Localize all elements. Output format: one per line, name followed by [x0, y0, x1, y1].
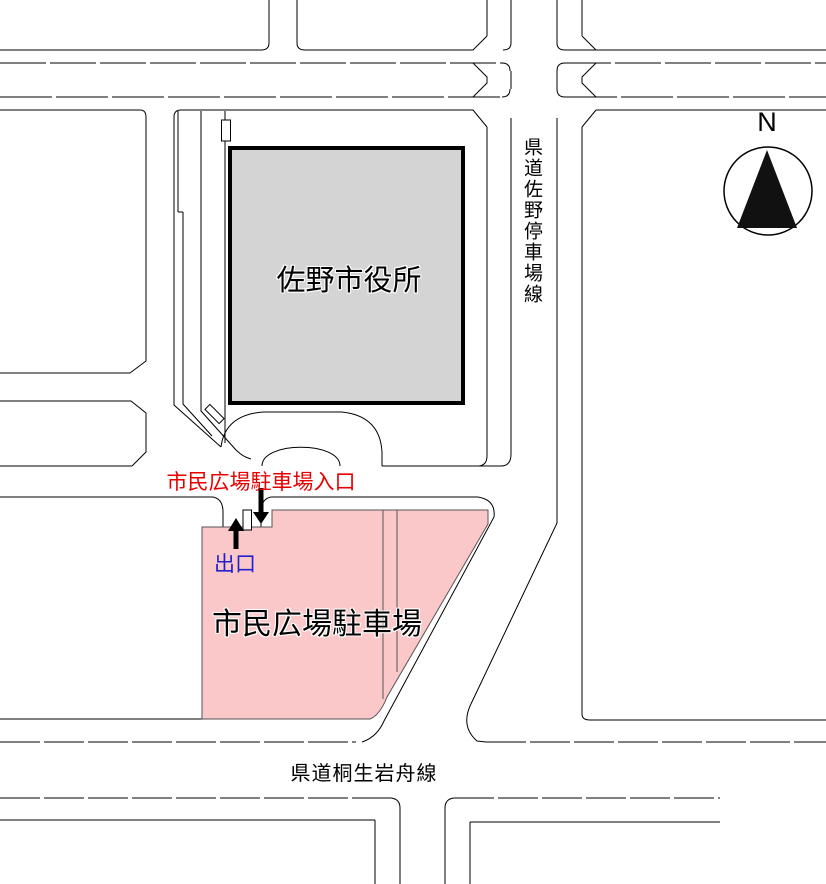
exit-label: 出口: [214, 548, 256, 578]
road-top-upper-edge: [0, 36, 826, 50]
compass-needle-icon: [737, 150, 797, 228]
road-vertical-upper: [487, 0, 582, 43]
map-canvas: [0, 0, 826, 884]
road-vertical-between-ab: [473, 63, 596, 97]
road-second-upper-arcs: [502, 89, 565, 97]
loop-driveway-outer: [221, 412, 382, 466]
road-stub-top: [269, 0, 297, 43]
road-bottom-sidewalk-south: [0, 820, 720, 884]
driveway-island: [243, 510, 252, 530]
block-edge-marker: [222, 120, 231, 141]
west-block-2: [0, 401, 146, 466]
west-block-1: [0, 117, 146, 373]
city-hall-label: 佐野市役所: [276, 257, 421, 299]
bottom-road-label: 県道桐生岩舟線: [291, 757, 438, 786]
parking-entrance-label: 市民広場駐車場入口: [167, 466, 356, 496]
alley-gate-marker: [205, 404, 224, 423]
south-stub-road: [400, 808, 445, 884]
vertical-road-label: 県道佐野停車場線: [518, 137, 545, 305]
road-bottom-mouth-arcs: [391, 798, 454, 808]
loop-driveway-island: [262, 447, 340, 466]
road-second-lower-edge: [0, 110, 826, 127]
road-top-lower-arcs: [502, 63, 565, 71]
road-network-lines: [0, 0, 826, 884]
compass-north-label: N: [757, 107, 777, 138]
compass: [724, 147, 812, 235]
access-map: 佐野市役所 市民広場駐車場 市民広場駐車場入口 出口 県道佐野停車場線 県道桐生…: [0, 0, 826, 884]
parking-lot-label: 市民広場駐車場: [212, 599, 422, 643]
